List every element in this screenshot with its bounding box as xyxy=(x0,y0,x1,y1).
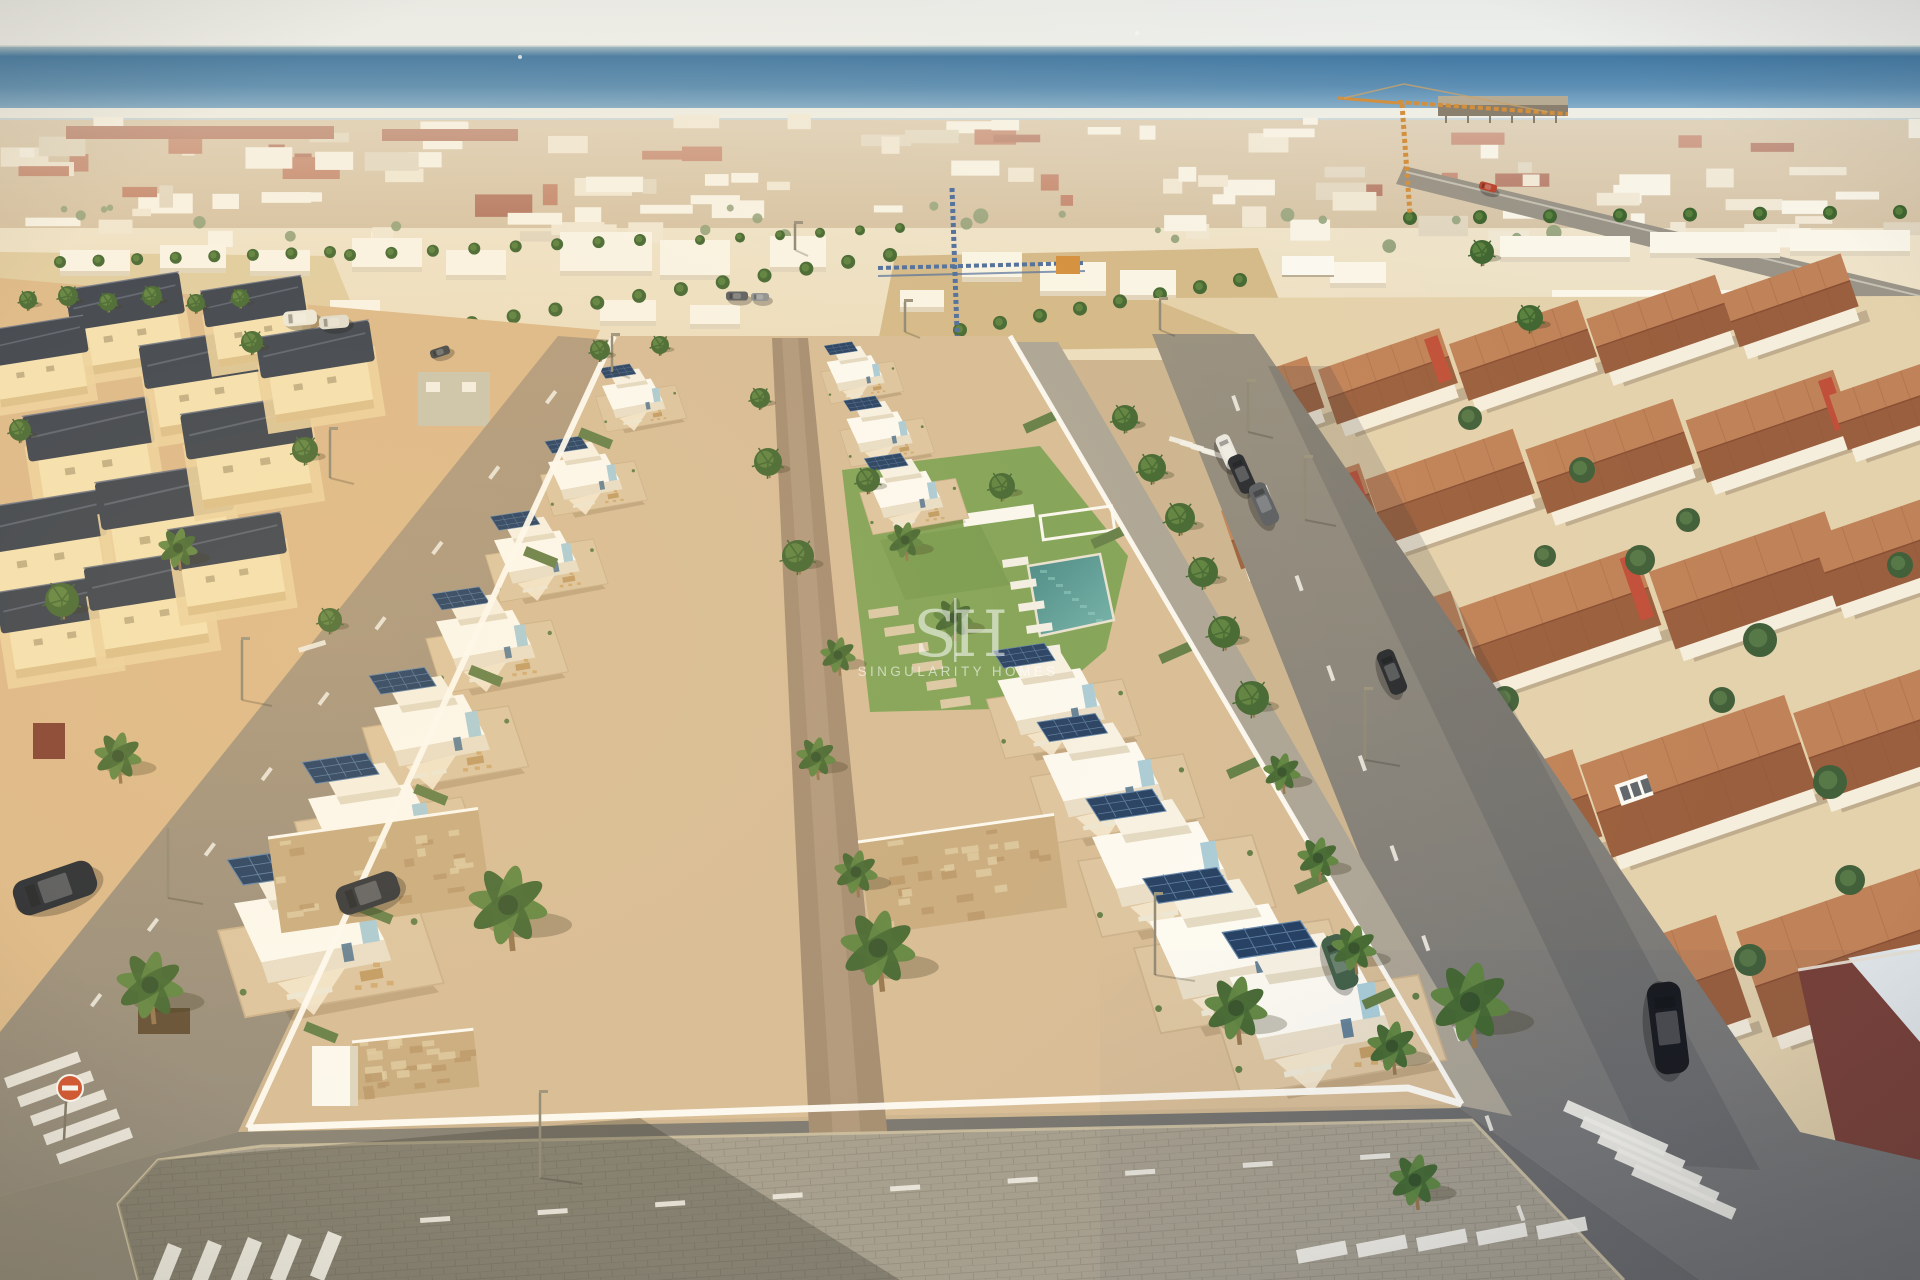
watermark-brand: SINGULARITY HOMES xyxy=(858,664,1059,679)
scene-svg: S H SINGULARITY HOMES xyxy=(0,0,1920,1280)
watermark-initial-right: H xyxy=(952,598,1008,672)
aerial-photo: S H SINGULARITY HOMES xyxy=(0,0,1920,1280)
watermark-initial-left: S xyxy=(913,598,957,672)
